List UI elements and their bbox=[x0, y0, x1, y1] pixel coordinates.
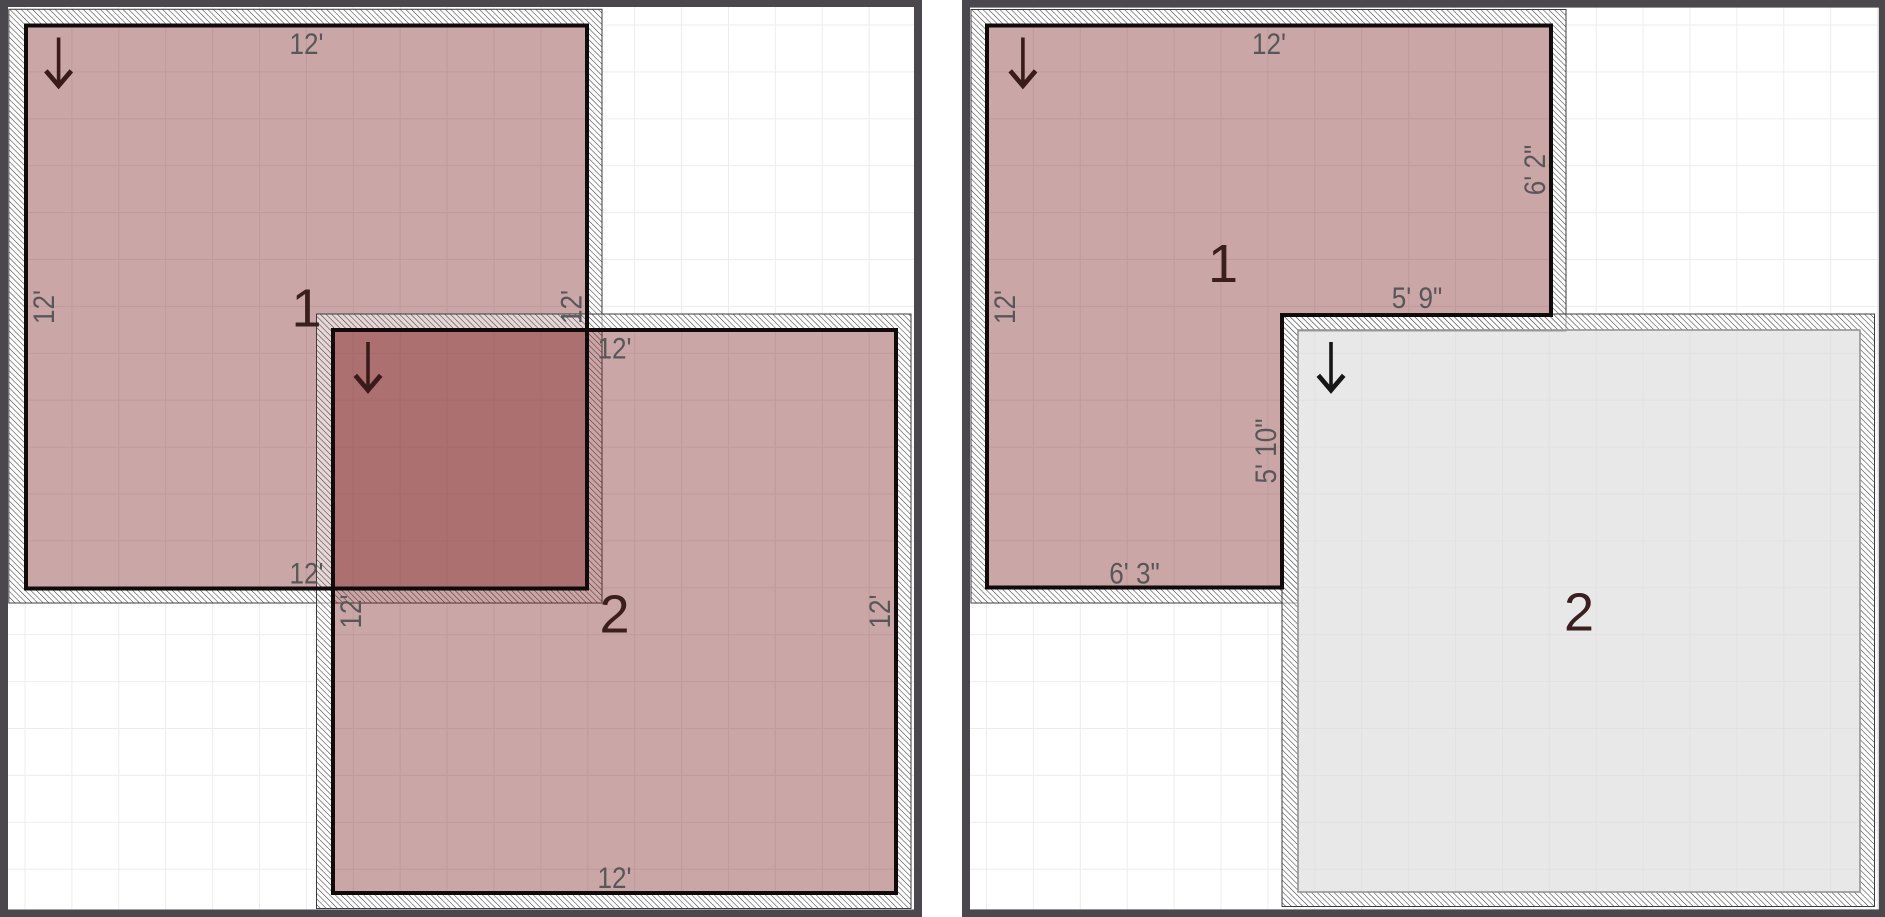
svg-text:12': 12' bbox=[289, 557, 323, 590]
svg-text:12': 12' bbox=[27, 290, 60, 324]
svg-text:2: 2 bbox=[1564, 583, 1594, 643]
svg-text:6' 2": 6' 2" bbox=[1518, 145, 1551, 196]
svg-text:12': 12' bbox=[863, 594, 896, 628]
svg-text:12': 12' bbox=[1252, 27, 1286, 60]
svg-text:12': 12' bbox=[597, 861, 631, 894]
svg-text:5' 9": 5' 9" bbox=[1392, 281, 1443, 314]
svg-text:6' 3": 6' 3" bbox=[1109, 557, 1160, 590]
svg-text:12': 12' bbox=[334, 594, 367, 628]
svg-text:12': 12' bbox=[988, 290, 1021, 324]
svg-text:12': 12' bbox=[289, 27, 323, 60]
svg-text:5' 10": 5' 10" bbox=[1249, 418, 1282, 483]
svg-text:1: 1 bbox=[1208, 234, 1238, 294]
svg-text:2: 2 bbox=[599, 585, 629, 645]
svg-text:1: 1 bbox=[291, 279, 321, 339]
svg-text:12': 12' bbox=[597, 332, 631, 365]
svg-text:12': 12' bbox=[555, 290, 588, 324]
